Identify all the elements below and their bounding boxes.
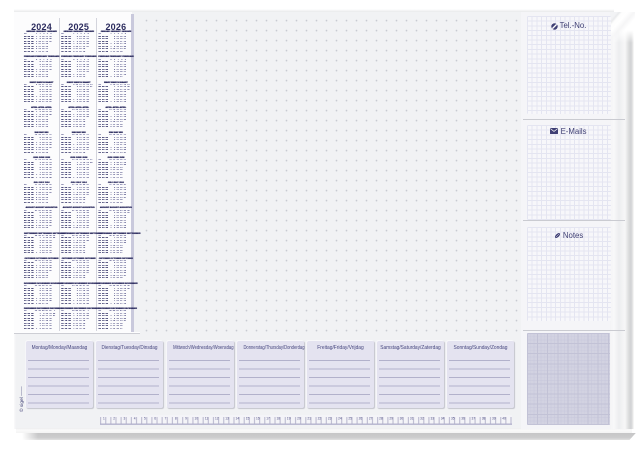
- svg-text:36: 36: [461, 417, 465, 421]
- svg-text:9: 9: [185, 417, 187, 421]
- svg-text:4: 4: [133, 417, 135, 421]
- svg-text:15: 15: [245, 417, 249, 421]
- svg-text:2: 2: [113, 417, 115, 421]
- svg-text:34: 34: [440, 417, 444, 421]
- svg-text:40: 40: [502, 417, 506, 421]
- svg-text:24: 24: [338, 417, 342, 421]
- svg-text:38: 38: [481, 417, 485, 421]
- svg-text:17: 17: [266, 417, 270, 421]
- svg-text:3: 3: [123, 417, 125, 421]
- svg-text:27: 27: [368, 417, 372, 421]
- svg-text:23: 23: [327, 417, 331, 421]
- svg-text:14: 14: [235, 417, 239, 421]
- svg-text:39: 39: [492, 417, 496, 421]
- svg-text:37: 37: [471, 417, 475, 421]
- svg-text:31: 31: [409, 417, 413, 421]
- svg-text:1: 1: [103, 417, 105, 421]
- svg-text:22: 22: [317, 417, 321, 421]
- svg-text:29: 29: [389, 417, 393, 421]
- svg-text:7: 7: [164, 417, 166, 421]
- svg-text:11: 11: [204, 417, 208, 421]
- svg-text:28: 28: [379, 417, 383, 421]
- svg-text:10: 10: [194, 417, 198, 421]
- svg-text:20: 20: [297, 417, 301, 421]
- svg-text:21: 21: [307, 417, 311, 421]
- svg-text:30: 30: [399, 417, 403, 421]
- svg-text:16: 16: [256, 417, 260, 421]
- svg-text:19: 19: [286, 417, 290, 421]
- svg-text:6: 6: [154, 417, 156, 421]
- svg-text:26: 26: [358, 417, 362, 421]
- svg-text:33: 33: [430, 417, 434, 421]
- svg-text:12: 12: [214, 417, 218, 421]
- svg-text:18: 18: [276, 417, 280, 421]
- svg-text:13: 13: [225, 417, 229, 421]
- svg-text:35: 35: [450, 417, 454, 421]
- svg-text:32: 32: [420, 417, 424, 421]
- svg-text:8: 8: [174, 417, 176, 421]
- svg-text:5: 5: [144, 417, 146, 421]
- svg-text:25: 25: [348, 417, 352, 421]
